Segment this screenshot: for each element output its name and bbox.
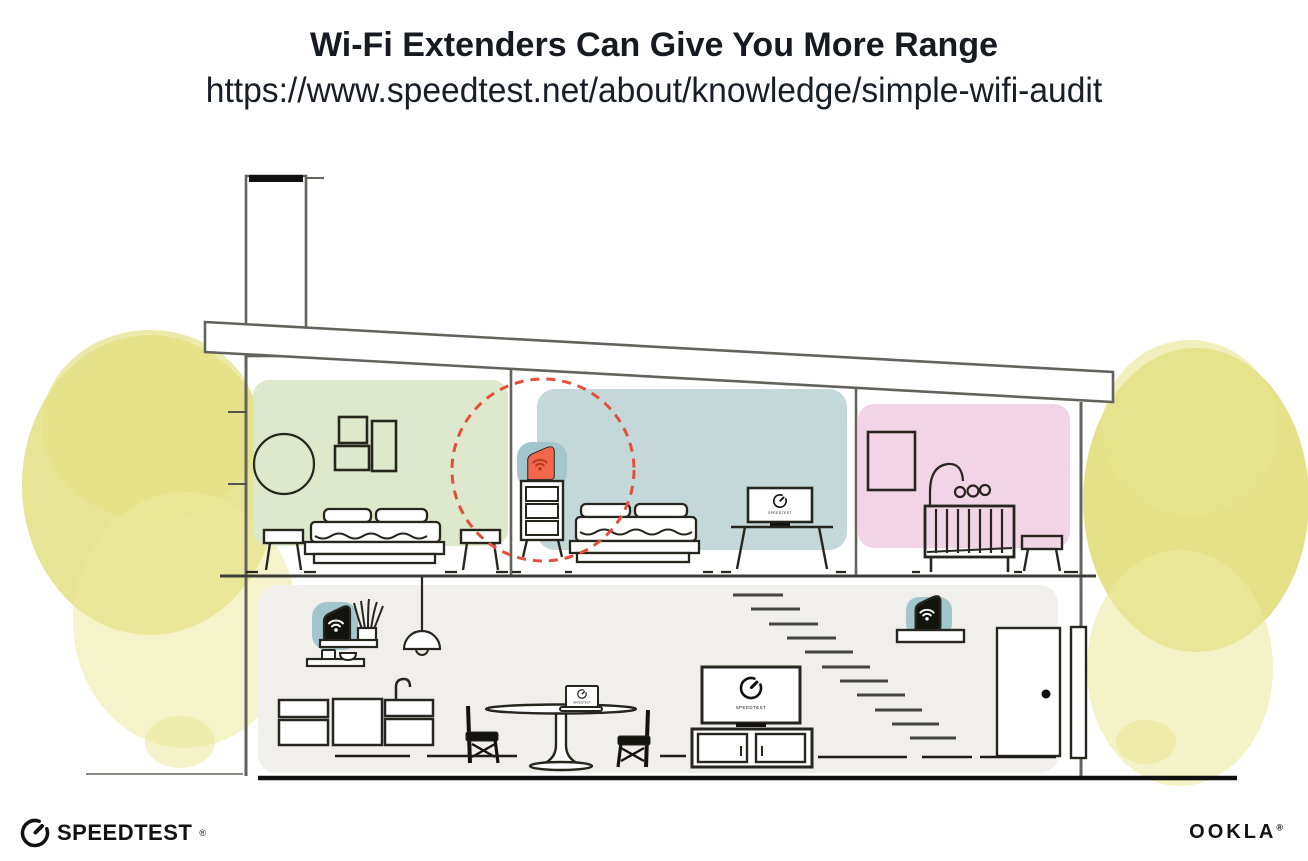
ookla-trademark: ® bbox=[1276, 822, 1286, 832]
bed bbox=[570, 504, 699, 562]
laptop-label: SPEEDTEST bbox=[573, 701, 590, 705]
speedtest-logo: SPEEDTEST® bbox=[20, 818, 206, 848]
ookla-wordmark: OOKLA bbox=[1189, 821, 1276, 843]
front-door bbox=[997, 628, 1060, 756]
gauge-icon bbox=[20, 818, 50, 848]
foliage-right bbox=[1083, 340, 1308, 786]
tv-console bbox=[692, 729, 812, 767]
living-room-tv-label: SPEEDTEST bbox=[736, 705, 767, 710]
speedtest-trademark: ® bbox=[199, 828, 206, 838]
laptop: SPEEDTEST bbox=[560, 686, 602, 711]
bedroom-tv-label: SPEEDTEST bbox=[768, 511, 792, 515]
speedtest-wordmark: SPEEDTEST bbox=[57, 820, 192, 846]
cup bbox=[322, 650, 335, 659]
door-side-panel bbox=[1071, 627, 1086, 758]
ookla-logo: OOKLA® bbox=[1189, 821, 1286, 844]
bowl bbox=[340, 653, 356, 660]
door-knob bbox=[1042, 690, 1051, 699]
living-room-tv: SPEEDTEST bbox=[702, 667, 800, 727]
nursery-bg bbox=[858, 404, 1070, 548]
infographic-page: Wi-Fi Extenders Can Give You More Range … bbox=[0, 0, 1308, 861]
house-cross-section-illustration: SPEEDTEST bbox=[0, 0, 1308, 861]
chimney-cap bbox=[249, 175, 303, 182]
